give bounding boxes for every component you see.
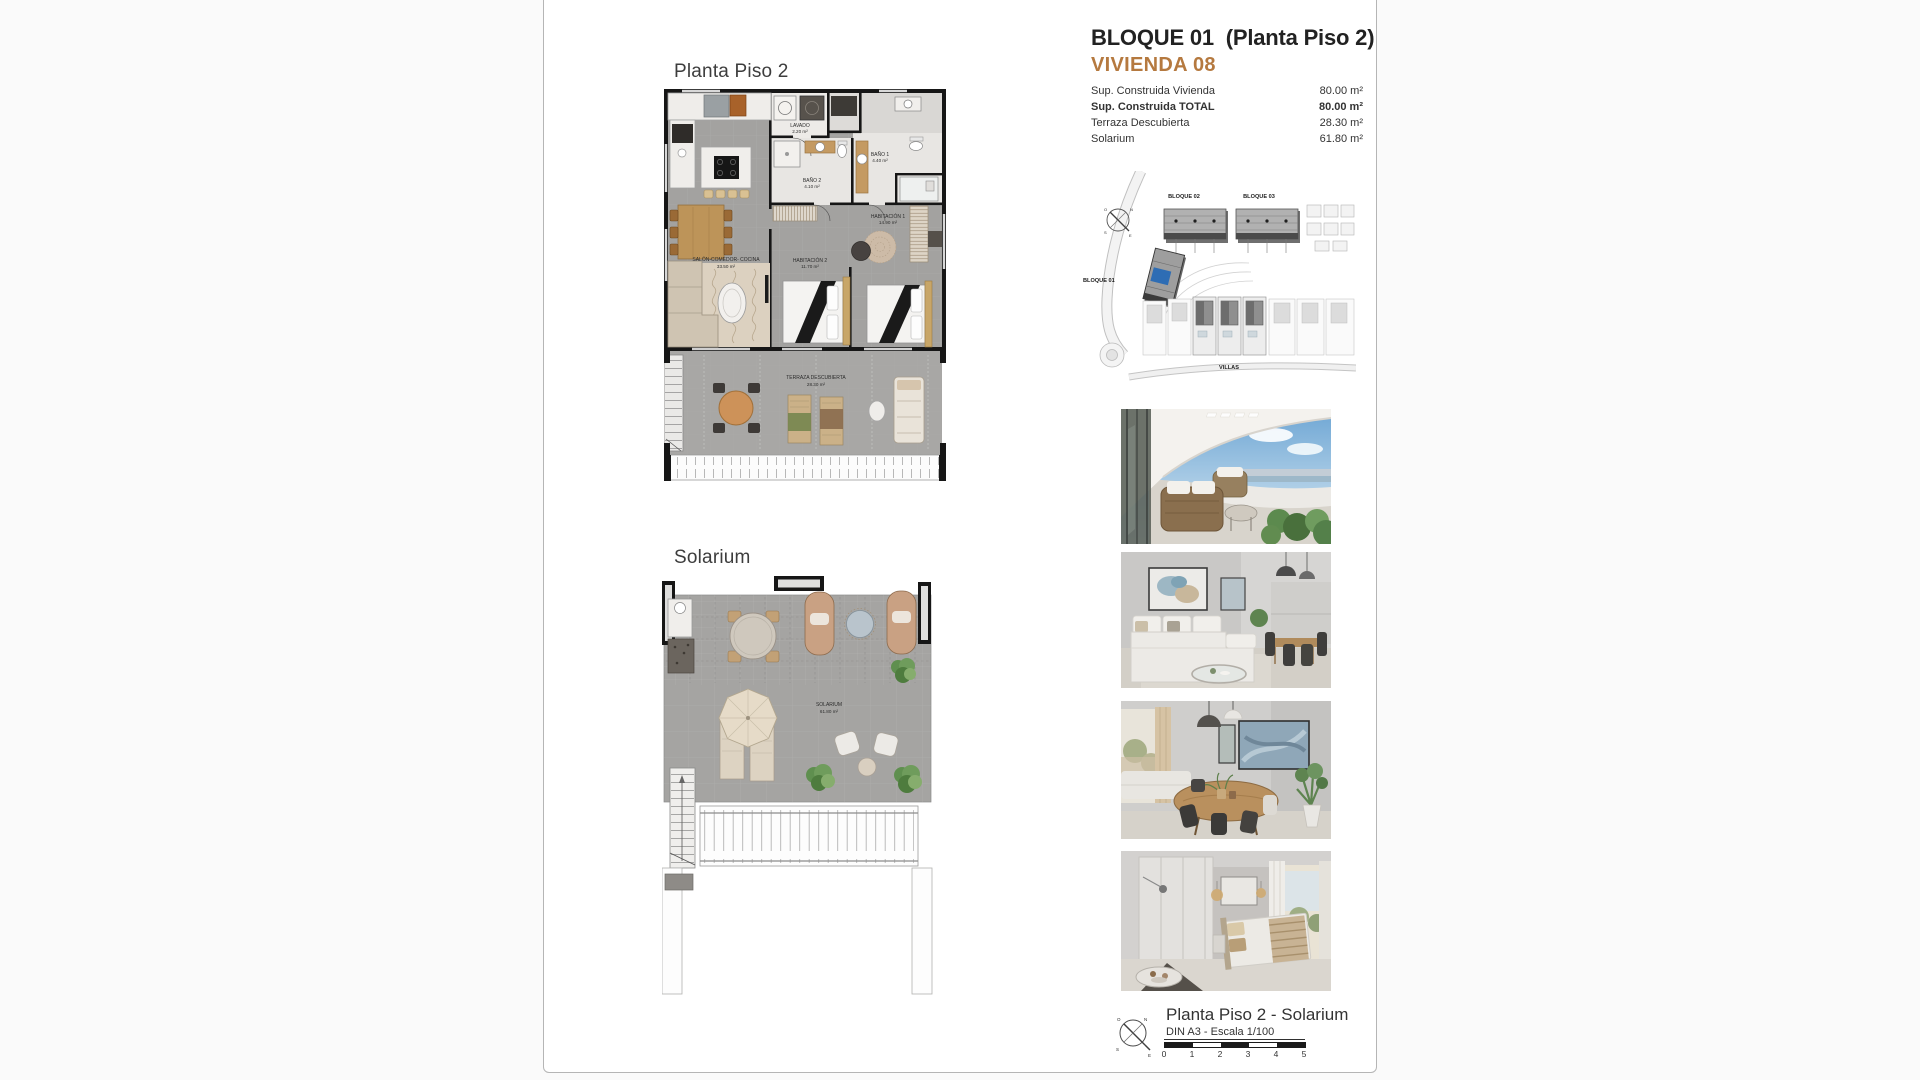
- scale-bar: [1164, 1042, 1306, 1048]
- surface-row: Solarium 61.80 m²: [1091, 131, 1363, 147]
- surface-value: 28.30 m²: [1320, 115, 1363, 131]
- svg-text:S: S: [1104, 230, 1107, 235]
- scale-tick-5: 5: [1298, 1049, 1310, 1059]
- svg-text:S: S: [1116, 1047, 1119, 1052]
- siteplan-label-bloque03: BLOQUE 03: [1243, 194, 1275, 200]
- room-solarium-area: 61.80 m²: [820, 709, 839, 714]
- photo-dining-room: [1121, 701, 1331, 839]
- living-area: [668, 261, 770, 347]
- room-hab2-area: 11.70 m²: [801, 264, 819, 269]
- surface-label: Solarium: [1091, 131, 1134, 147]
- surface-row: Sup. Construida TOTAL 80.00 m²: [1091, 99, 1363, 115]
- outdoor-kitchenette: [668, 599, 694, 673]
- room-salon-area: 33.50 m²: [717, 264, 736, 269]
- room-lavado-area: 2.20 m²: [792, 129, 808, 134]
- room-bano2-area: 4.10 m²: [804, 184, 820, 189]
- siteplan-label-bloque02: BLOQUE 02: [1168, 194, 1200, 200]
- surface-value: 61.80 m²: [1320, 131, 1363, 147]
- svg-text:N: N: [1130, 207, 1133, 212]
- footer-compass-icon: N O S E: [1112, 1007, 1158, 1061]
- plants-photo: [1261, 509, 1331, 544]
- floorplan-piso2: LAVADO 2.20 m² BAÑO 2 4.10 m² BAÑO 1 4.4…: [664, 89, 946, 482]
- boiler: [831, 96, 857, 116]
- svg-text:N: N: [1144, 1017, 1147, 1022]
- nightstand: [1213, 935, 1225, 953]
- siteplan-label-bloque01: BLOQUE 01: [1083, 278, 1115, 284]
- siteplan-villas: [1143, 297, 1354, 355]
- room-terraza-name: TERRAZA DESCUBIERTA: [786, 375, 846, 381]
- room-solarium-name: SOLARIUM: [816, 702, 842, 708]
- surface-label: Sup. Construida Vivienda: [1091, 83, 1215, 99]
- solarium-dining-set: [728, 611, 779, 662]
- screenshot-canvas: Planta Piso 2: [0, 0, 1920, 1080]
- svg-text:O: O: [1117, 1017, 1121, 1022]
- photo-living-room: [1121, 552, 1331, 688]
- surface-value: 80.00 m²: [1319, 99, 1363, 115]
- surface-label: Terraza Descubierta: [1091, 115, 1189, 131]
- photo-bedroom: [1121, 851, 1331, 991]
- room-hab1-area: 14.90 m²: [879, 220, 898, 225]
- svg-text:E: E: [1148, 1053, 1151, 1058]
- surface-row: Sup. Construida Vivienda 80.00 m²: [1091, 83, 1363, 99]
- surface-row: Terraza Descubierta 28.30 m²: [1091, 115, 1363, 131]
- stairs: [664, 355, 683, 451]
- document-page: Planta Piso 2: [543, 0, 1377, 1073]
- siteplan-bloque02: [1164, 209, 1228, 253]
- room-hab1-name: HABITACIÓN 1: [871, 213, 906, 220]
- dining-table: [670, 205, 732, 259]
- surface-label: Sup. Construida TOTAL: [1091, 99, 1215, 115]
- glass-wall: [1121, 409, 1151, 544]
- scale-underline: [1164, 1039, 1305, 1040]
- room-bano1-name: BAÑO 1: [871, 151, 890, 158]
- parasol: [719, 689, 777, 747]
- lower-structure: [662, 868, 932, 994]
- room-terraza-area: 28.30 m²: [807, 382, 826, 387]
- wardrobe: [1139, 857, 1213, 961]
- siteplan: N O S E: [1079, 171, 1356, 384]
- room-bano2-name: BAÑO 2: [803, 177, 822, 184]
- coffee-table-glass: [1192, 665, 1246, 683]
- scale-tick-2: 2: [1214, 1049, 1226, 1059]
- scale-tick-3: 3: [1242, 1049, 1254, 1059]
- surface-table: Sup. Construida Vivienda 80.00 m² Sup. C…: [1091, 83, 1363, 147]
- solarium-stairs: [670, 768, 695, 868]
- plan-heading-piso2: Planta Piso 2: [674, 61, 789, 83]
- wall-art-dining: [1219, 721, 1309, 769]
- siteplan-label-villas: VILLAS: [1219, 365, 1239, 371]
- scale-tick-1: 1: [1186, 1049, 1198, 1059]
- scale-tick-4: 4: [1270, 1049, 1282, 1059]
- terrace-railing: [664, 455, 946, 481]
- room-salon-name: SALÓN-COMEDOR- COCINA: [692, 256, 760, 263]
- svg-text:O: O: [1104, 207, 1107, 212]
- siteplan-bloque03: [1236, 209, 1300, 253]
- scale-tick-0: 0: [1158, 1049, 1170, 1059]
- plant-photo2: [1250, 609, 1268, 627]
- svg-text:E: E: [1129, 233, 1132, 238]
- plan-heading-solarium: Solarium: [674, 547, 751, 569]
- footer-title: Planta Piso 2 - Solarium: [1166, 1005, 1348, 1025]
- header-title: BLOQUE 01 (Planta Piso 2): [1091, 25, 1374, 51]
- surface-value: 80.00 m²: [1320, 83, 1363, 99]
- footer-scale-note: DIN A3 - Escala 1/100: [1166, 1026, 1274, 1038]
- siteplan-houses-right: [1307, 205, 1354, 251]
- room-bano1-area: 4.40 m²: [872, 158, 888, 163]
- header-subtitle: VIVIENDA 08: [1091, 54, 1216, 77]
- room-hab2-name: HABITACIÓN 2: [793, 257, 828, 264]
- sink-unit: [895, 97, 921, 111]
- floorplan-solarium: SOLARIUM 61.80 m²: [662, 575, 947, 995]
- solarium-railing: [700, 806, 918, 866]
- photo-terrace-exterior: [1121, 409, 1331, 544]
